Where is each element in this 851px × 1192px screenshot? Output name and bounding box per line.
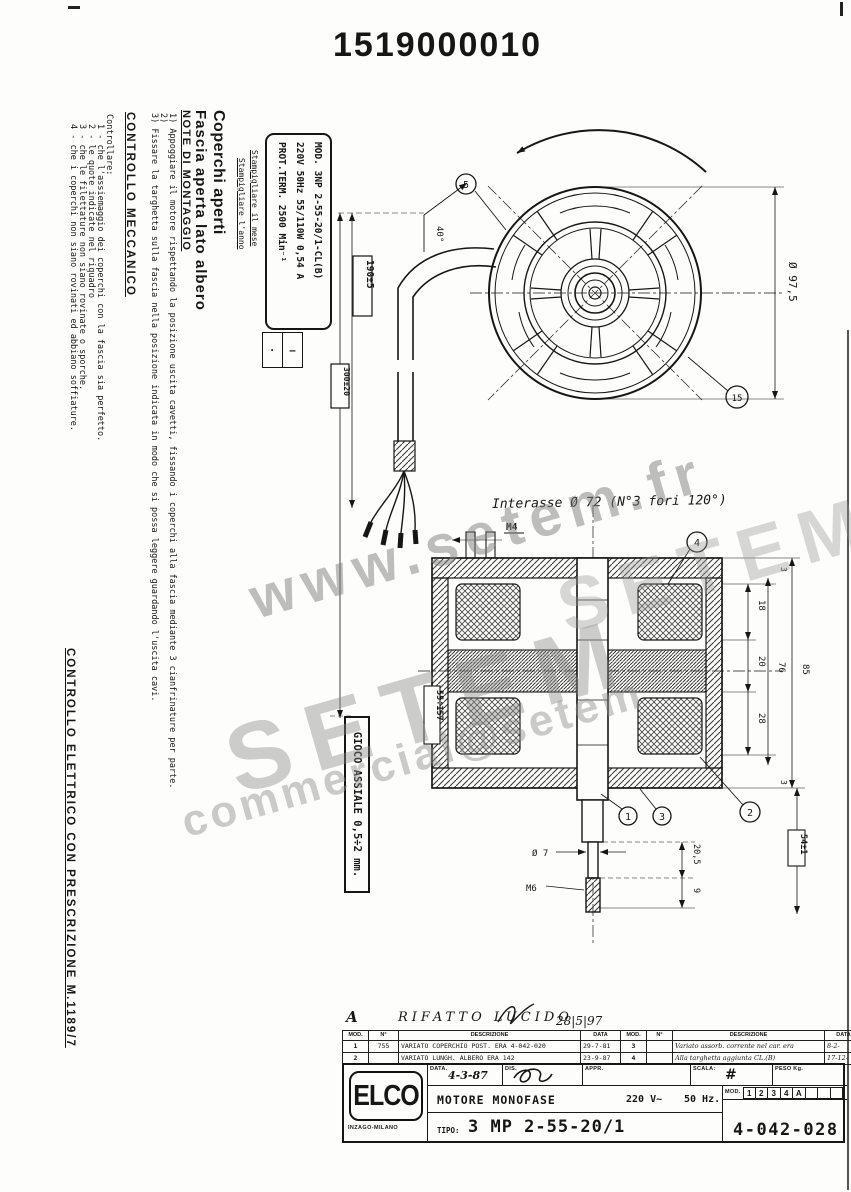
- rev-col-mod: MOD.: [343, 1031, 369, 1041]
- mod-cells: 1 2 3 4 A: [743, 1087, 843, 1099]
- balloon-4: 4: [694, 538, 700, 549]
- tipo-value: 3 MP 2-55-20/1: [468, 1117, 625, 1137]
- product-voltage: 220 V~: [626, 1094, 662, 1105]
- balloon-1: 1: [625, 812, 631, 823]
- table-row: 1 755 VARIATO COPERCHIO POST. ERA 4-042-…: [343, 1041, 851, 1053]
- mod-cell-8: [831, 1087, 844, 1099]
- data-label: DATA.: [430, 1066, 448, 1072]
- dim-3-bottom-label: 3: [779, 780, 788, 785]
- peso-label: PESO Kg.: [775, 1066, 803, 1072]
- mod-cell-3: 3: [768, 1087, 781, 1099]
- technical-drawing-sheet: 1519000010 Coperchi aperti Fascia aperta…: [0, 0, 851, 1192]
- rev-col-descr2: DESCRIZIONE: [673, 1031, 825, 1041]
- rev-col-mod2: MOD.: [621, 1031, 647, 1041]
- rev-data2: 8-2-: [825, 1041, 851, 1053]
- dim-20-label: 20: [756, 656, 766, 667]
- drawing-number-cell: 4-042-028: [722, 1099, 847, 1141]
- rev-col-n: N°: [369, 1031, 399, 1041]
- dim-76-label: 76: [776, 662, 786, 673]
- data-cell: DATA. 4-3-87: [427, 1065, 502, 1085]
- dim-cable-exit-label: 190±5: [364, 260, 375, 289]
- balloon-2: 2: [747, 808, 753, 819]
- revision-letter: A: [346, 1008, 358, 1026]
- mod-cell-4: 4: [781, 1087, 794, 1099]
- logo-cell: ELCO INZAGO-MILANO: [344, 1065, 428, 1141]
- mod-cell-6: [806, 1087, 819, 1099]
- dim-9-label: 9: [691, 888, 701, 893]
- drawing-number: 4-042-028: [733, 1120, 839, 1140]
- revision-note: RIFATTO LUCIDO: [398, 1010, 573, 1025]
- dim-diameter-label: Ø 97,5: [786, 262, 799, 302]
- rev-col-descr: DESCRIZIONE: [399, 1031, 581, 1041]
- dim-54-label: 54±1: [798, 834, 808, 854]
- appr-label: APPR.: [585, 1066, 603, 1072]
- dim-range-label: 55÷157: [434, 690, 444, 721]
- dim-angle-label: 40°: [434, 226, 444, 242]
- holes-note: Interasse Ø 72 (N°3 fori 120°): [492, 493, 727, 512]
- rev-n: 755: [369, 1041, 399, 1053]
- rev-mod2: 3: [621, 1041, 647, 1053]
- product-cell: MOTORE MONOFASE 220 V~ 50 Hz.: [427, 1085, 722, 1112]
- tipo-label: TIPO:: [437, 1126, 460, 1135]
- dim-3-top-label: 3: [779, 567, 788, 572]
- rotation-arrow: [517, 130, 706, 172]
- dim-18-label: 18: [756, 600, 766, 611]
- section-view-drawing: Interasse Ø 72 (N°3 fori 120°) M4 4 1 3 …: [418, 493, 810, 945]
- dis-label: DIS.: [505, 1066, 517, 1072]
- dim-28-label: 28: [756, 713, 766, 724]
- dim-shaft-label: Ø 7: [532, 848, 548, 859]
- elco-logo-text: ELCO: [353, 1079, 418, 1112]
- rev-n2: [647, 1041, 673, 1053]
- mod-cell-2: 2: [756, 1087, 769, 1099]
- logo-city: INZAGO-MILANO: [348, 1125, 398, 1131]
- dim-cable-length-label: 300±20: [342, 367, 351, 396]
- data-value: 4-3-87: [448, 1069, 488, 1082]
- thread-top-label: M4: [506, 522, 518, 533]
- rev-descr: VARIATO COPERCHIO POST. ERA 4-042-020: [399, 1041, 581, 1053]
- dis-cell: DIS.: [502, 1065, 582, 1085]
- thread-bottom-label: M6: [526, 884, 537, 894]
- title-block: ELCO INZAGO-MILANO DATA. 4-3-87 DIS. APP…: [342, 1063, 845, 1143]
- product-name: MOTORE MONOFASE: [437, 1093, 556, 1107]
- appr-cell: APPR.: [582, 1065, 690, 1085]
- balloon-15: 15: [732, 394, 743, 404]
- rev-col-data2: DATA: [825, 1031, 851, 1041]
- mod-strip-cell: MOD. 1 2 3 4 A: [722, 1085, 847, 1099]
- peso-cell: PESO Kg.: [772, 1065, 847, 1085]
- rev-data: 29-7-81: [581, 1041, 621, 1053]
- mod-cell-7: [818, 1087, 831, 1099]
- rev-col-n2: N°: [647, 1031, 673, 1041]
- mod-cell-1: 1: [743, 1087, 756, 1099]
- mod-cell-5: A: [793, 1087, 806, 1099]
- balloon-3: 3: [659, 812, 665, 823]
- cable-drawing: 190±5 300±20: [330, 213, 496, 718]
- rev-col-data: DATA: [581, 1031, 621, 1041]
- scala-cell: SCALA: #: [690, 1065, 772, 1085]
- dim-205-label: 20,5: [691, 844, 701, 864]
- rev-descr2: Variato assorb. corrente nel car. era: [673, 1041, 825, 1053]
- dim-85-label: 85: [800, 664, 810, 675]
- mod-label: MOD.: [725, 1089, 741, 1095]
- rev-mod: 1: [343, 1041, 369, 1053]
- elco-logo: ELCO: [349, 1071, 423, 1121]
- product-frequency: 50 Hz.: [684, 1094, 720, 1105]
- tipo-cell: TIPO: 3 MP 2-55-20/1: [427, 1112, 722, 1141]
- revision-table: MOD. N° DESCRIZIONE DATA MOD. N° DESCRIZ…: [342, 1030, 851, 1065]
- scala-label: SCALA:: [693, 1066, 716, 1072]
- front-view-drawing: Ø 97,5 5 15 40°: [424, 130, 799, 408]
- scala-value: #: [725, 1067, 737, 1083]
- revision-date: 28|5|97: [556, 1014, 602, 1028]
